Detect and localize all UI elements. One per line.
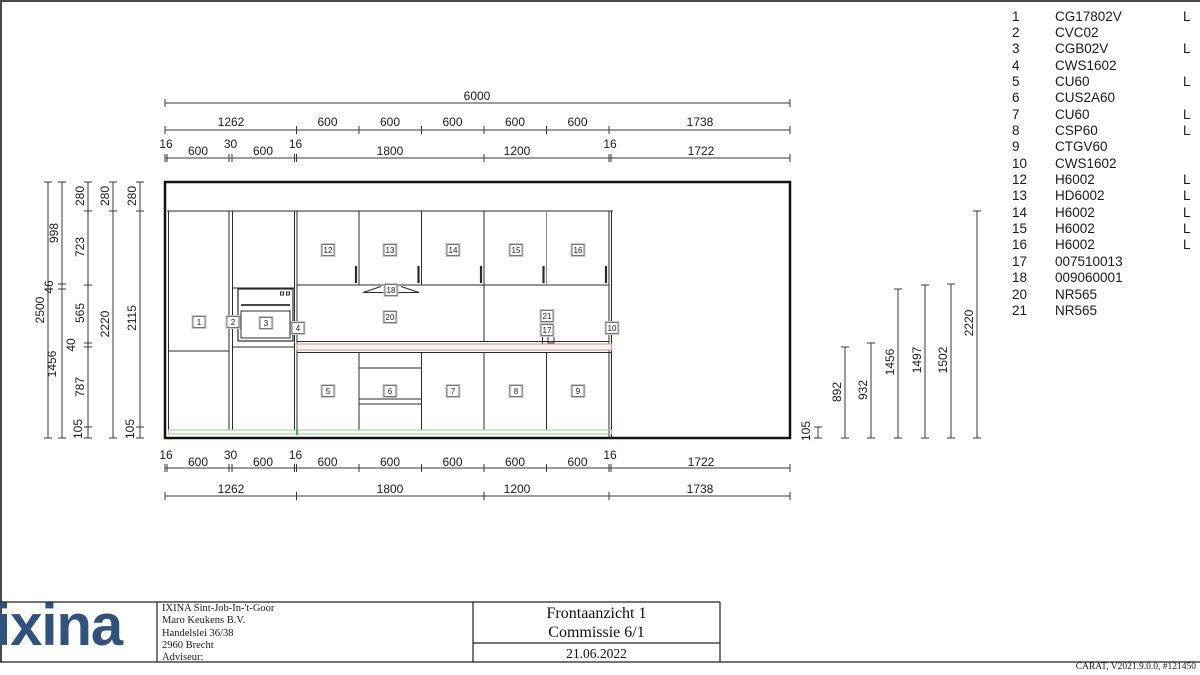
dimension-label: 2220: [98, 311, 112, 338]
part-code: CUS2A60: [1055, 90, 1183, 105]
parts-list-row: 12 H6002 L: [1012, 171, 1197, 187]
cabinet-tag-8: 8: [510, 385, 523, 397]
address-line: Maro Keukens B.V.: [162, 615, 274, 627]
dimension-label: 1456: [45, 351, 59, 378]
part-code: NR565: [1055, 287, 1183, 302]
part-number: 10: [1012, 156, 1055, 171]
dimension-label: 16: [603, 137, 616, 151]
ixina-logo: ixina: [0, 592, 122, 659]
software-version-footer: CARAT, V2021.9.0.0, #121450: [996, 662, 1200, 672]
dimension-label: 1800: [377, 482, 404, 496]
parts-list-row: 7 CU60 L: [1012, 106, 1197, 122]
dimension-label: 105: [123, 419, 137, 439]
dimension-label: 46: [42, 280, 56, 293]
dimension-label: 600: [505, 455, 525, 469]
parts-list-row: 10 CWS1602: [1012, 155, 1197, 171]
part-number: 14: [1012, 205, 1055, 220]
dimension-label: 1502: [936, 347, 950, 374]
dimension-label: 1200: [504, 482, 531, 496]
dimension-label: 600: [253, 455, 273, 469]
cabinet-tag-5: 5: [322, 385, 335, 397]
cabinet-tag-1: 1: [193, 316, 206, 328]
cabinet-tag-16: 16: [572, 244, 585, 256]
dimension-label: 1262: [218, 115, 245, 129]
drawing-sheet: 6000126260060060060060017381660030600161…: [0, 0, 1200, 675]
part-code: 009060001: [1055, 270, 1183, 285]
part-side-flag: L: [1183, 9, 1197, 24]
parts-list-row: 1 CG17802V L: [1012, 8, 1197, 24]
dimension-label: 723: [73, 237, 87, 257]
dimension-label: 2500: [33, 297, 47, 324]
part-number: 1: [1012, 9, 1055, 24]
part-side-flag: L: [1183, 221, 1197, 236]
part-code: CU60: [1055, 107, 1183, 122]
dimension-label: 16: [289, 448, 302, 462]
parts-list-row: 2 CVC02: [1012, 24, 1197, 40]
parts-list-row: 17 007510013: [1012, 253, 1197, 269]
part-code: CWS1602: [1055, 58, 1183, 73]
dimension-label: 1262: [218, 482, 245, 496]
part-number: 3: [1012, 41, 1055, 56]
dimension-label: 1722: [688, 455, 715, 469]
dimension-label: 1722: [688, 144, 715, 158]
dimension-label: 1800: [377, 144, 404, 158]
address-line: IXINA Sint-Job-In-'t-Goor: [162, 603, 274, 615]
dimension-label: 105: [71, 419, 85, 439]
part-code: CU60: [1055, 74, 1183, 89]
dimension-label: 600: [317, 115, 337, 129]
cabinet-tag-18: 18: [385, 284, 398, 296]
cabinet-tag-9: 9: [572, 385, 585, 397]
drawing-title: Frontaanzicht 1: [473, 605, 720, 623]
part-side-flag: L: [1183, 205, 1197, 220]
dimension-label: 30: [224, 137, 237, 151]
dimension-label: 600: [567, 115, 587, 129]
part-code: NR565: [1055, 303, 1183, 318]
dimension-label: 600: [442, 115, 462, 129]
cabinet-tag-4: 4: [292, 322, 305, 334]
parts-list-row: 8 CSP60 L: [1012, 122, 1197, 138]
part-side-flag: L: [1183, 123, 1197, 138]
part-number: 21: [1012, 303, 1055, 318]
part-side-flag: L: [1183, 172, 1197, 187]
part-side-flag: L: [1183, 107, 1197, 122]
parts-list: 1 CG17802V L 2 CVC02 3 CGB02V L 4 CWS160…: [1012, 8, 1197, 319]
part-number: 13: [1012, 188, 1055, 203]
parts-list-row: 16 H6002 L: [1012, 237, 1197, 253]
part-number: 8: [1012, 123, 1055, 138]
part-code: HD6002: [1055, 188, 1183, 203]
part-side-flag: L: [1183, 41, 1197, 56]
cabinet-tag-20: 20: [384, 311, 397, 323]
parts-list-row: 6 CUS2A60: [1012, 90, 1197, 106]
part-code: CTGV60: [1055, 139, 1183, 154]
dimension-label: 600: [188, 455, 208, 469]
parts-list-row: 15 H6002 L: [1012, 220, 1197, 236]
dimension-label: 600: [188, 144, 208, 158]
dimension-label: 600: [442, 455, 462, 469]
dimension-label: 280: [98, 186, 112, 206]
part-number: 15: [1012, 221, 1055, 236]
commission-number: Commissie 6/1: [473, 624, 720, 642]
address-line: Handelslei 36/38: [162, 628, 274, 640]
part-number: 17: [1012, 254, 1055, 269]
part-side-flag: L: [1183, 237, 1197, 252]
parts-list-row: 14 H6002 L: [1012, 204, 1197, 220]
dimension-label: 6000: [464, 89, 491, 103]
part-code: H6002: [1055, 172, 1183, 187]
dimension-label: 16: [289, 137, 302, 151]
company-address: IXINA Sint-Job-In-'t-Goor Maro Keukens B…: [162, 603, 274, 664]
cabinet-tag-12: 12: [322, 244, 335, 256]
dimension-label: 1456: [883, 349, 897, 376]
parts-list-row: 4 CWS1602: [1012, 57, 1197, 73]
address-line: 2960 Brecht: [162, 640, 274, 652]
cabinet-tag-6: 6: [384, 385, 397, 397]
dimension-label: 280: [73, 186, 87, 206]
dimension-label: 600: [505, 115, 525, 129]
dimension-label: 1497: [910, 347, 924, 374]
dimension-label: 2115: [125, 305, 139, 331]
part-side-flag: L: [1183, 188, 1197, 203]
part-code: CSP60: [1055, 123, 1183, 138]
part-side-flag: L: [1183, 74, 1197, 89]
part-number: 12: [1012, 172, 1055, 187]
cabinet-tag-3: 3: [260, 317, 273, 329]
cabinet-tag-15: 15: [510, 244, 523, 256]
dimension-label: 105: [799, 421, 813, 441]
parts-list-row: 9 CTGV60: [1012, 139, 1197, 155]
dimension-label: 600: [317, 455, 337, 469]
part-code: CG17802V: [1055, 9, 1183, 24]
dimension-label: 16: [159, 137, 172, 151]
dimension-label: 1738: [687, 482, 714, 496]
dimension-label: 998: [47, 223, 61, 243]
parts-list-row: 20 NR565: [1012, 286, 1197, 302]
dimension-label: 565: [73, 303, 87, 323]
part-number: 16: [1012, 237, 1055, 252]
dimension-label: 2220: [962, 310, 976, 337]
parts-list-row: 18 009060001: [1012, 270, 1197, 286]
dimension-label: 600: [567, 455, 587, 469]
part-number: 18: [1012, 270, 1055, 285]
part-number: 4: [1012, 58, 1055, 73]
dimension-label: 16: [159, 448, 172, 462]
cabinet-tag-17: 17: [541, 324, 554, 336]
cabinet-tag-14: 14: [447, 244, 460, 256]
part-code: CVC02: [1055, 25, 1183, 40]
part-code: H6002: [1055, 221, 1183, 236]
cabinet-tag-10: 10: [606, 322, 619, 334]
cabinet-tag-7: 7: [447, 385, 460, 397]
part-code: CWS1602: [1055, 156, 1183, 171]
cabinet-tag-2: 2: [227, 316, 240, 328]
cabinet-tag-13: 13: [384, 244, 397, 256]
part-number: 20: [1012, 287, 1055, 302]
parts-list-row: 5 CU60 L: [1012, 73, 1197, 89]
drawing-border: [165, 182, 790, 438]
part-number: 9: [1012, 139, 1055, 154]
dimension-label: 30: [224, 448, 237, 462]
part-code: H6002: [1055, 237, 1183, 252]
part-number: 6: [1012, 90, 1055, 105]
part-number: 5: [1012, 74, 1055, 89]
dimension-label: 1738: [687, 115, 714, 129]
dimension-label: 1200: [504, 144, 531, 158]
parts-list-row: 3 CGB02V L: [1012, 41, 1197, 57]
dimension-label: 600: [380, 115, 400, 129]
dimension-label: 892: [830, 382, 844, 402]
drawing-title-box: Frontaanzicht 1 Commissie 6/1 21.06.2022: [473, 602, 720, 662]
dimension-label: 40: [64, 338, 78, 351]
dimension-label: 787: [73, 377, 87, 397]
part-code: 007510013: [1055, 254, 1183, 269]
cabinet-tag-21: 21: [541, 310, 554, 322]
dimension-label: 16: [603, 448, 616, 462]
address-line: Adviseur:: [162, 652, 274, 664]
part-code: H6002: [1055, 205, 1183, 220]
dimension-label: 600: [380, 455, 400, 469]
dimension-label: 280: [125, 186, 139, 206]
parts-list-row: 21 NR565: [1012, 302, 1197, 318]
part-number: 7: [1012, 107, 1055, 122]
dimension-label: 932: [856, 380, 870, 400]
part-number: 2: [1012, 25, 1055, 40]
dimension-label: 600: [253, 144, 273, 158]
worktop: [297, 344, 612, 350]
parts-list-row: 13 HD6002 L: [1012, 188, 1197, 204]
drawing-date: 21.06.2022: [473, 646, 720, 662]
part-code: CGB02V: [1055, 41, 1183, 56]
